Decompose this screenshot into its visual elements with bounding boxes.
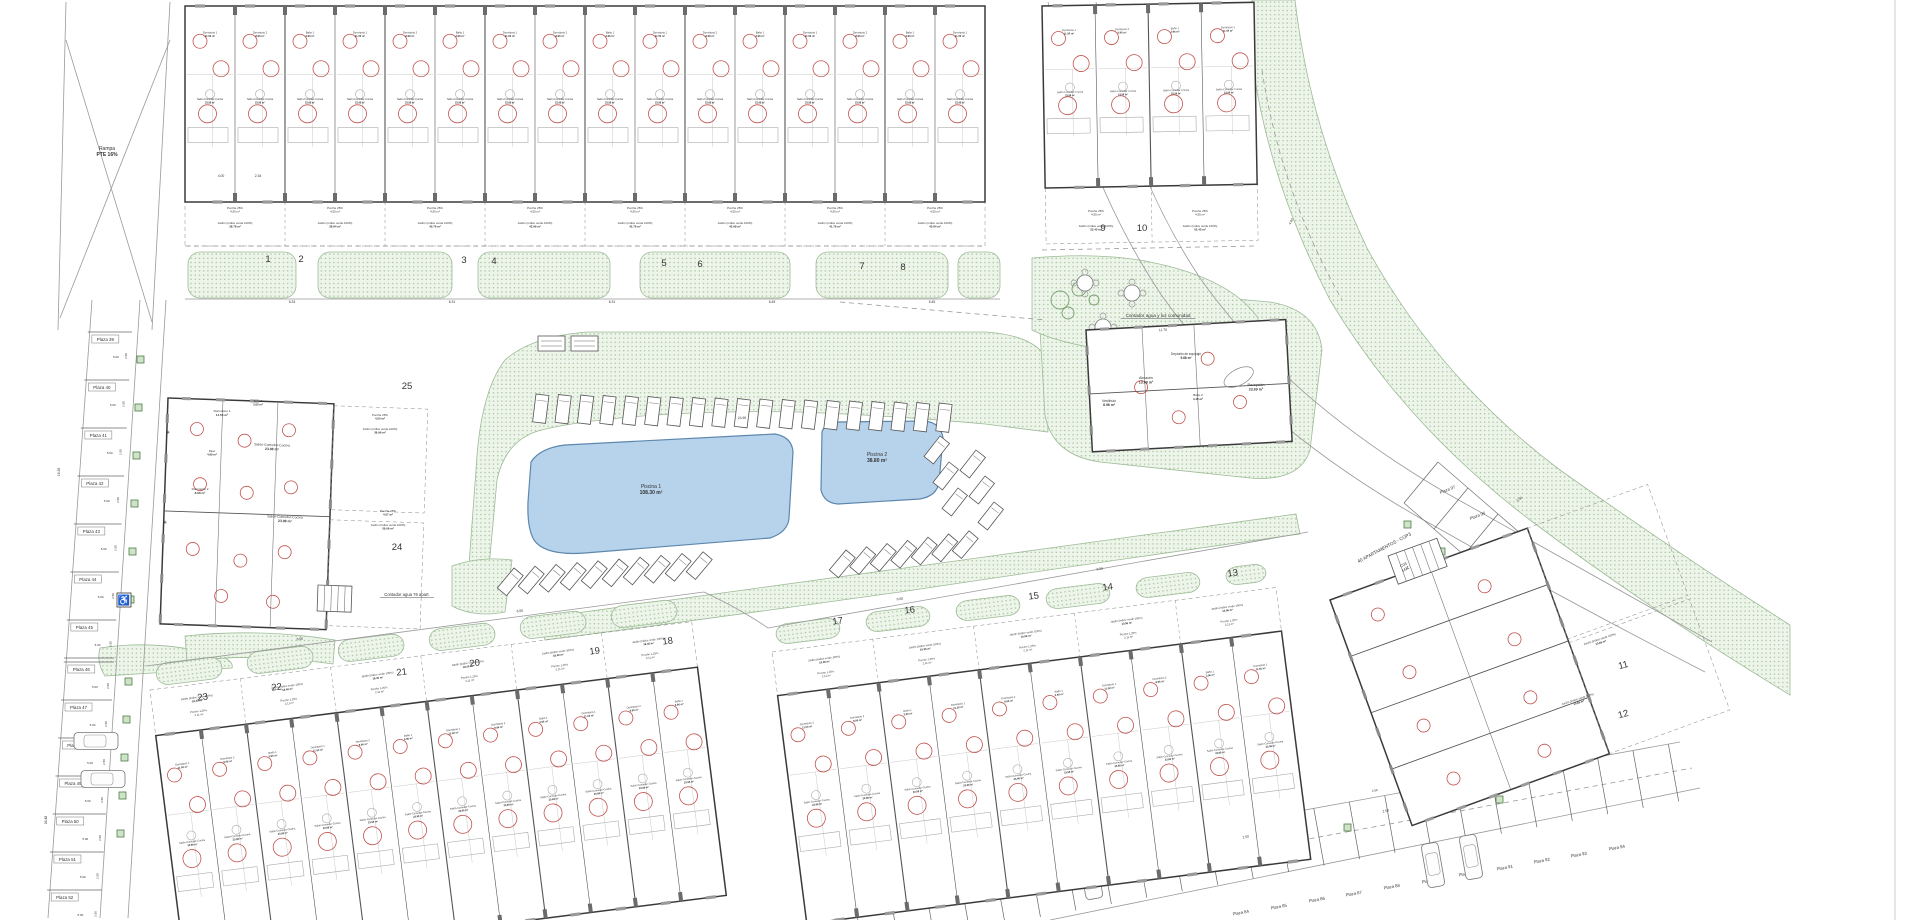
dimension-label: 4.00 bbox=[218, 174, 225, 178]
block-plots-18-23: Jardín (índice verde 100%)18.40 m²Porche… bbox=[150, 622, 726, 920]
utility-box bbox=[119, 792, 126, 799]
window bbox=[1100, 327, 1109, 330]
annotation: Jardín (índice verde 100%)10.66 m² bbox=[1583, 632, 1617, 650]
utility-box bbox=[1496, 796, 1503, 803]
garden-divider bbox=[511, 644, 517, 690]
plot-number-25: 25 bbox=[402, 381, 413, 392]
window bbox=[945, 4, 955, 7]
porche-label: Porche 1,25%2.11 m² bbox=[1220, 618, 1238, 628]
hedge bbox=[775, 617, 841, 645]
wall-segment bbox=[683, 193, 687, 202]
car-symbol bbox=[74, 733, 118, 750]
window bbox=[695, 4, 705, 7]
dimension-label: 2.50 bbox=[1372, 788, 1379, 793]
annotation: Porche 25%4.07 m² bbox=[380, 509, 396, 517]
sunbed bbox=[644, 555, 670, 583]
window bbox=[1134, 326, 1143, 329]
window bbox=[795, 4, 805, 7]
wall-segment bbox=[233, 193, 237, 202]
window bbox=[1276, 440, 1285, 443]
sunbed bbox=[518, 566, 544, 594]
wall-segment bbox=[1199, 3, 1203, 12]
annotation: Porche 25%4.50 m² bbox=[372, 413, 388, 421]
annotation: Jardín (índice verde 100%)36.96 m² bbox=[363, 427, 398, 435]
stall-divider bbox=[1562, 764, 1572, 821]
window bbox=[845, 4, 855, 7]
porche-label: Porche 1,25%2.11 m² bbox=[817, 669, 835, 679]
dimension-label: 2.50 bbox=[104, 721, 108, 727]
room-label: Baño 13.96 m² bbox=[539, 716, 549, 724]
garden-label: Jardín (índice verde 100%)42.96 m² bbox=[518, 221, 553, 229]
room-label: Baño 13.96 m² bbox=[1054, 689, 1064, 698]
garden-label: Jardín (índice verde 100%)38.84 m² bbox=[318, 221, 353, 229]
plaza-label: Plaza 91 bbox=[1496, 863, 1514, 871]
plot-number-12: 12 bbox=[1617, 708, 1630, 721]
plot-number-14: 14 bbox=[1102, 581, 1114, 593]
hedge bbox=[1045, 582, 1111, 610]
staircase bbox=[317, 585, 352, 612]
dimension-label: 19.26 bbox=[57, 468, 61, 477]
room-label: Baño 13.96 m² bbox=[674, 698, 684, 706]
garden-label: Jardín (índice verde 100%)10.96 m² bbox=[1009, 629, 1042, 641]
plot-number-15: 15 bbox=[1028, 590, 1040, 602]
window bbox=[284, 401, 293, 404]
room-label: Baño 13.96 m² bbox=[903, 708, 913, 717]
window bbox=[164, 454, 167, 463]
road-line bbox=[152, 2, 170, 330]
plaza-label: Plaza 86 bbox=[1308, 895, 1326, 903]
sunbed bbox=[581, 561, 607, 589]
plaza-label: Plaza 92 bbox=[1533, 856, 1551, 864]
wall-segment bbox=[383, 6, 387, 15]
utility-box bbox=[121, 754, 128, 761]
window bbox=[1270, 318, 1279, 321]
plot-number-21: 21 bbox=[396, 666, 408, 678]
window bbox=[1202, 322, 1211, 325]
stair-outline bbox=[317, 585, 352, 612]
window bbox=[395, 4, 405, 7]
window bbox=[1053, 4, 1063, 7]
wall-segment bbox=[1146, 4, 1150, 13]
porche-label: Porche 1,25%2.11 m² bbox=[280, 697, 298, 707]
garden-label: Jardín (índice verde 100%)42.98 m² bbox=[718, 221, 753, 229]
garden-label: Jardín (índice verde 100%)23.45 m² bbox=[1079, 224, 1114, 232]
window bbox=[1285, 335, 1288, 344]
porche-label: Porche 1,25%2.11 m² bbox=[918, 656, 936, 666]
plaza-label: Plaza 84 bbox=[1232, 908, 1250, 916]
porche-label: Porche 25%4.55 m² bbox=[427, 206, 443, 214]
window bbox=[295, 4, 305, 7]
plot-number-11: 11 bbox=[1617, 659, 1629, 672]
annotation: Contador agua 76 apart. bbox=[384, 592, 429, 597]
plot-number-24: 24 bbox=[392, 542, 403, 553]
window bbox=[310, 628, 319, 631]
porche-label: Porche 1,25%2.11 m² bbox=[1019, 643, 1037, 653]
annotation: ✳ bbox=[166, 430, 170, 436]
window bbox=[1074, 186, 1084, 189]
utility-box bbox=[133, 452, 140, 459]
window bbox=[645, 4, 655, 7]
wall-segment bbox=[633, 6, 637, 15]
plaza-label: Plaza 51 bbox=[59, 857, 77, 862]
wall-segment bbox=[633, 193, 637, 202]
plot-number-23: 23 bbox=[197, 691, 209, 703]
wall-segment bbox=[533, 6, 537, 15]
dimension-label: 5.00 bbox=[87, 761, 93, 765]
window bbox=[182, 397, 191, 400]
porche-label: Porche 1,25%2.11 m² bbox=[370, 685, 388, 695]
sunbed bbox=[978, 502, 1003, 530]
block-plots-11-12 bbox=[1328, 483, 1730, 827]
site-plan-drawing: Plaza 395.002.50Plaza 405.002.50Plaza 41… bbox=[0, 0, 1920, 920]
dimension-label: 2.50 bbox=[111, 593, 115, 599]
plaza-label: Plaza 47 bbox=[70, 705, 88, 710]
porche-label: Porche 1,25%2.11 m² bbox=[190, 708, 208, 718]
hedge bbox=[318, 252, 452, 298]
garden-boundary bbox=[1045, 184, 1258, 244]
annotation: Baño 24.40 m² bbox=[1193, 393, 1203, 401]
garden-label: Jardín (índice verde 100%)52.45 m² bbox=[1183, 224, 1218, 232]
window bbox=[159, 614, 162, 623]
wall-segment bbox=[433, 6, 437, 15]
dimension-label: 5.00 bbox=[107, 451, 113, 455]
utility-box bbox=[125, 678, 132, 685]
sunbed bbox=[686, 552, 712, 580]
plaza-label: Plaza 52 bbox=[56, 895, 74, 900]
dimension-label: 5.00 bbox=[98, 595, 104, 599]
plot-number-6: 6 bbox=[697, 259, 702, 270]
window bbox=[813, 200, 823, 203]
window bbox=[161, 534, 164, 543]
hedge bbox=[958, 252, 1000, 298]
room-label: Baño 13.96 m² bbox=[268, 750, 278, 758]
porche-label: Porche 1,25%2.11 m² bbox=[551, 662, 569, 672]
utility-box bbox=[1404, 521, 1411, 528]
stall-divider bbox=[1314, 809, 1324, 866]
dimension-label: 5.00 bbox=[113, 355, 119, 359]
road-line bbox=[840, 302, 1046, 320]
sunbed bbox=[539, 564, 565, 592]
garden-label: Jardín (índice verde 100%)18.40 m² bbox=[361, 670, 394, 681]
window bbox=[1087, 386, 1090, 395]
wall-segment bbox=[783, 193, 787, 202]
wall-segment bbox=[933, 193, 937, 202]
porche-label: Porche 1,25%2.11 m² bbox=[461, 674, 479, 684]
window bbox=[863, 200, 873, 203]
annotation: ✳ bbox=[163, 520, 167, 526]
porche-label: Porche 25%4.55 m² bbox=[627, 206, 643, 214]
porche-label: Porche 25%4.55 m² bbox=[927, 206, 943, 214]
plaza-label: Plaza 93 bbox=[1570, 850, 1588, 858]
plaza-label: Plaza 96 bbox=[1469, 510, 1487, 521]
dimension-label: 5.00 bbox=[101, 547, 107, 551]
window bbox=[895, 4, 905, 7]
wall-segment bbox=[833, 193, 837, 202]
wall-segment bbox=[533, 193, 537, 202]
plaza-label: Plaza 41 bbox=[90, 433, 108, 438]
window bbox=[1180, 184, 1190, 187]
plaza-label: Plaza 49 bbox=[64, 781, 82, 786]
garden-label: Jardín (índice verde 100%)45.84 m² bbox=[918, 221, 953, 229]
wall-segment bbox=[783, 6, 787, 15]
wall-segment bbox=[833, 6, 837, 15]
porche-label: Porche 25%4.55 m² bbox=[727, 206, 743, 214]
pool-1-label: Piscina 1108.30 m² bbox=[640, 484, 663, 496]
wall-segment bbox=[1096, 178, 1100, 187]
garden-divider bbox=[1074, 613, 1080, 657]
garden-strip bbox=[1045, 184, 1258, 244]
room-label: Baño 13.96 m² bbox=[1170, 26, 1179, 34]
window bbox=[216, 398, 225, 401]
annotation: Vestíbulo8.96 m² bbox=[1102, 399, 1116, 407]
utility-box bbox=[129, 548, 136, 555]
garden-label: Jardín (índice verde 100%)18.40 m² bbox=[632, 636, 665, 647]
window bbox=[166, 414, 169, 423]
garden-boundary bbox=[330, 406, 428, 513]
stall-divider bbox=[1598, 757, 1608, 814]
sunbed bbox=[932, 534, 958, 562]
plot-number-22: 22 bbox=[271, 681, 283, 693]
window bbox=[1242, 442, 1251, 445]
window bbox=[713, 200, 723, 203]
window bbox=[1140, 447, 1149, 450]
window bbox=[463, 200, 473, 203]
garden-divider bbox=[601, 633, 607, 679]
window bbox=[195, 4, 205, 7]
window bbox=[345, 4, 355, 7]
garden-label: Jardín (índice verde 100%)10.96 m² bbox=[808, 654, 841, 666]
plot-number-5: 5 bbox=[661, 258, 666, 269]
garden-divider bbox=[240, 679, 246, 725]
block-plots-13-17: Jardín (índice verde 100%)10.96 m²Porche… bbox=[772, 587, 1311, 920]
porche-label: Porche 1,25%2.11 m² bbox=[1120, 630, 1138, 640]
plot-number-4: 4 bbox=[491, 256, 496, 267]
window bbox=[208, 624, 217, 627]
garden-strip bbox=[185, 202, 985, 246]
wall-segment bbox=[1202, 176, 1206, 185]
dimension-label: 6.50 bbox=[1096, 567, 1103, 572]
wall-segment bbox=[233, 6, 237, 15]
sunbed bbox=[942, 488, 967, 516]
window bbox=[1168, 324, 1177, 327]
annotation: RampaPTE 16% bbox=[96, 146, 118, 158]
window bbox=[1090, 426, 1093, 435]
wall-segment bbox=[483, 193, 487, 202]
plot-number-16: 16 bbox=[904, 604, 916, 616]
building-outline bbox=[156, 667, 727, 920]
dimension-label: 2.50 bbox=[96, 873, 100, 879]
wall-segment bbox=[383, 193, 387, 202]
dimension-label: 2.50 bbox=[108, 641, 112, 647]
garden-label: Jardín (índice verde 100%)40.76 m² bbox=[418, 221, 453, 229]
utility-box bbox=[117, 830, 124, 837]
window bbox=[445, 4, 455, 7]
window bbox=[1212, 1, 1222, 4]
window bbox=[563, 200, 573, 203]
dimension-label: 6.50 bbox=[296, 637, 303, 642]
garden-label: Jardín (índice verde 100%)42.76 m² bbox=[618, 221, 653, 229]
dimension-label: 5.00 bbox=[104, 499, 110, 503]
plaza-label: Plaza 85 bbox=[1270, 902, 1288, 910]
sunbed bbox=[560, 563, 586, 591]
wall-segment bbox=[433, 193, 437, 202]
garden-divider bbox=[873, 639, 879, 683]
hedge bbox=[188, 252, 296, 298]
window bbox=[160, 574, 163, 583]
annotation: Almacén13.08 m² bbox=[1139, 376, 1154, 384]
porche-label: Porche 1,25%2.11 m² bbox=[641, 651, 659, 661]
wall-segment bbox=[483, 6, 487, 15]
dimension-label: 6.33 bbox=[289, 300, 296, 304]
garden-label: Jardín (índice verde 100%)38.78 m² bbox=[218, 221, 253, 229]
window bbox=[1174, 446, 1183, 449]
plaza-label: Plaza 43 bbox=[83, 529, 101, 534]
plaza-label: Plaza 45 bbox=[76, 625, 94, 630]
road-line bbox=[66, 40, 152, 322]
dimension-label: 2.50 bbox=[106, 683, 110, 689]
dimension-label: 2.34 bbox=[255, 174, 262, 178]
annotation: Baño 13.00 m² bbox=[253, 399, 263, 407]
wall-segment bbox=[333, 193, 337, 202]
garden-table bbox=[1124, 285, 1140, 301]
utility-box bbox=[131, 500, 138, 507]
porche-label: Porche 25%4.55 m² bbox=[527, 206, 543, 214]
window bbox=[963, 200, 973, 203]
stall-divider bbox=[1404, 462, 1438, 503]
plot-number-19: 19 bbox=[589, 645, 601, 657]
plot-number-13: 13 bbox=[1227, 567, 1239, 579]
stall-divider bbox=[1633, 751, 1643, 808]
window bbox=[1236, 320, 1245, 323]
garden-label: Jardín (índice verde 100%)10.96 m² bbox=[1211, 603, 1244, 615]
plaza-label: Plaza 40 bbox=[93, 385, 111, 390]
plaza-label: Plaza 88 bbox=[1383, 882, 1401, 890]
plaza-label: Plaza 44 bbox=[79, 577, 97, 582]
garden-divider bbox=[974, 626, 980, 670]
utility-box bbox=[123, 716, 130, 723]
window bbox=[1085, 346, 1088, 355]
wall-segment bbox=[333, 6, 337, 15]
wall-segment bbox=[883, 193, 887, 202]
dimension-label: 2.50 bbox=[113, 545, 117, 551]
plot-number-20: 20 bbox=[469, 657, 481, 669]
window bbox=[276, 626, 285, 629]
garden-label: Jardín (índice verde 100%)18.40 m² bbox=[542, 648, 575, 659]
dimension-label: 5.00 bbox=[82, 837, 88, 841]
sunbed bbox=[969, 476, 994, 504]
wall-segment bbox=[283, 193, 287, 202]
pool-2-label: Piscina 238.80 m² bbox=[867, 452, 888, 464]
hedge bbox=[816, 252, 948, 298]
sunbed bbox=[870, 544, 896, 572]
dimension-label: 11.70 bbox=[1159, 328, 1168, 333]
plot-number-8: 8 bbox=[900, 262, 905, 273]
window bbox=[913, 200, 923, 203]
plaza-label: Plaza 97 bbox=[1439, 484, 1457, 495]
window bbox=[213, 200, 223, 203]
dimension-label: 2.50 bbox=[1382, 808, 1389, 813]
window bbox=[174, 623, 183, 626]
dimension-label: 5.00 bbox=[95, 643, 101, 647]
plaza-label: Plaza 39 bbox=[97, 337, 115, 342]
plot-number-17: 17 bbox=[832, 615, 844, 627]
dimension-label: 6.45 bbox=[929, 300, 936, 304]
garden-label: Jardín (índice verde 100%)10.96 m² bbox=[1110, 616, 1143, 628]
window bbox=[513, 200, 523, 203]
window bbox=[745, 4, 755, 7]
porche-label: Porche 25%4.55 m² bbox=[1192, 209, 1208, 217]
dimension-label: 2.50 bbox=[98, 835, 102, 841]
dimension-label: 2.50 bbox=[121, 401, 125, 407]
wall-segment bbox=[1149, 177, 1153, 186]
dimension-label: 2.50 bbox=[119, 449, 123, 455]
dimension-label: 5.00 bbox=[90, 723, 96, 727]
dimension-label: 5.00 bbox=[85, 799, 91, 803]
window bbox=[1127, 185, 1137, 188]
room-label: Baño 13.96 m² bbox=[403, 733, 413, 741]
garden-divider bbox=[1151, 186, 1152, 242]
room-label: Baño 13.96 m² bbox=[306, 30, 315, 37]
sunbed bbox=[623, 557, 649, 585]
hedge bbox=[478, 252, 610, 298]
plot-number-10: 10 bbox=[1137, 223, 1148, 234]
window bbox=[1208, 444, 1217, 447]
room-label: Baño 13.96 m² bbox=[906, 30, 915, 37]
sunbed bbox=[952, 531, 978, 559]
window bbox=[1106, 449, 1115, 452]
road-line bbox=[58, 2, 66, 330]
wheelchair-accessible-icon: ♿ bbox=[118, 594, 130, 607]
pool-sign bbox=[538, 336, 565, 351]
plot-number-3: 3 bbox=[461, 255, 466, 266]
window bbox=[363, 200, 373, 203]
stall-divider bbox=[1385, 796, 1395, 853]
plot-number-7: 7 bbox=[859, 261, 864, 272]
dimension-label: 5.00 bbox=[80, 875, 86, 879]
wall-segment bbox=[933, 6, 937, 15]
sunbed bbox=[665, 554, 691, 582]
site-plan-sheet: Plaza 395.002.50Plaza 405.002.50Plaza 41… bbox=[0, 0, 1920, 920]
porche-label: Porche 25%4.55 m² bbox=[327, 206, 343, 214]
hedge bbox=[337, 633, 405, 663]
garden-boundary bbox=[326, 520, 424, 629]
sunbed bbox=[602, 559, 628, 587]
sunbed bbox=[850, 547, 876, 575]
window bbox=[163, 494, 166, 503]
wall-segment bbox=[283, 6, 287, 15]
block-plots-1-8: Dormitorio 111.50 m²Salón-Comedor-Cocina… bbox=[185, 4, 985, 246]
plot-number-2: 2 bbox=[298, 254, 303, 265]
window bbox=[763, 200, 773, 203]
plot-number-1: 1 bbox=[265, 254, 270, 265]
wall-segment bbox=[583, 193, 587, 202]
road-line bbox=[60, 40, 170, 318]
annotation: Jardín (índice verde 100%)26.66 m² bbox=[371, 523, 406, 531]
dimension-label: 2.50 bbox=[102, 759, 106, 765]
dimension-label: 26.48 bbox=[44, 816, 48, 825]
dimension-label: 5.00 bbox=[110, 403, 116, 407]
plaza-label: Plaza 42 bbox=[86, 481, 104, 486]
plaza-label: Plaza 94 bbox=[1608, 843, 1626, 851]
wall-segment bbox=[733, 193, 737, 202]
dimension-label: 23.96 bbox=[738, 416, 747, 420]
wall-segment bbox=[733, 6, 737, 15]
car-symbol bbox=[81, 771, 125, 788]
wall-segment bbox=[1093, 5, 1097, 14]
plaza-label: Plaza 46 bbox=[73, 667, 91, 672]
utility-box bbox=[137, 356, 144, 363]
dimension-label: 6.50 bbox=[516, 609, 523, 614]
